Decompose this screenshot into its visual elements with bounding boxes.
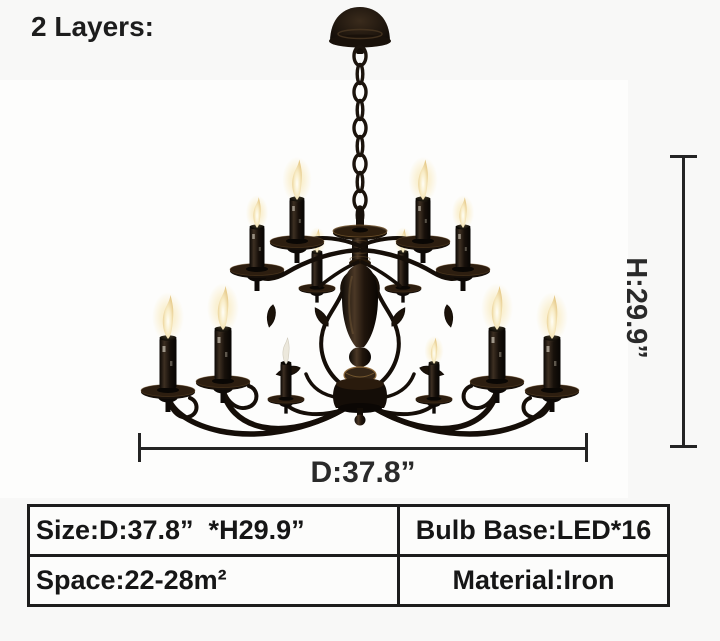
center-hub: [333, 378, 387, 426]
product-spec-image: { "annotation": { "layers_label": "2 Lay…: [0, 0, 720, 641]
spec-cell-bulb-base: Bulb Base:LED*16: [400, 507, 667, 557]
hanging-chain: [354, 47, 366, 224]
spec-table: Size:D:37.8” *H29.9” Bulb Base:LED*16 Sp…: [27, 504, 670, 607]
spec-cell-space: Space:22-28m²: [30, 557, 400, 604]
spec-cell-size: Size:D:37.8” *H29.9”: [30, 507, 400, 557]
diameter-dimension-line: [138, 447, 588, 450]
diameter-dimension-label: D:37.8”: [238, 455, 488, 491]
height-dimension-bottom-cap: [670, 445, 697, 448]
diameter-dimension-right-cap: [585, 433, 588, 462]
center-column: [333, 208, 387, 267]
chandelier-image: [0, 0, 720, 500]
height-dimension-top-cap: [670, 155, 697, 158]
height-dimension-label: H:29.9”: [619, 248, 653, 368]
diameter-dimension-left-cap: [138, 433, 141, 462]
center-vase: [342, 264, 378, 383]
layers-label: 2 Layers:: [31, 11, 154, 43]
spec-cell-material: Material:Iron: [400, 557, 667, 604]
height-dimension-line: [682, 155, 685, 448]
